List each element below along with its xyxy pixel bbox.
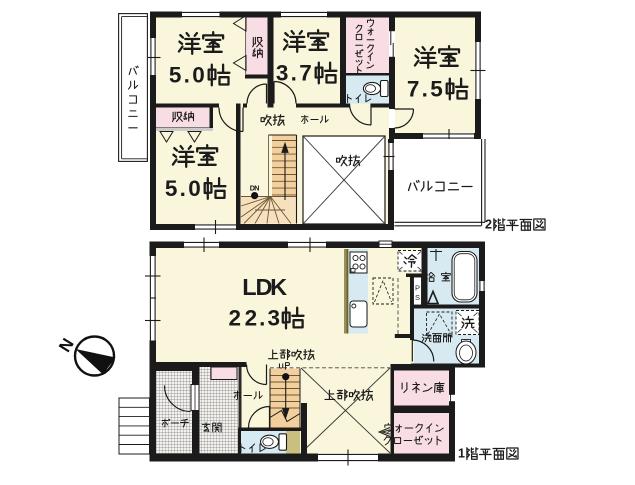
- svg-text:2: 2: [485, 218, 492, 232]
- svg-text:1: 1: [458, 447, 465, 461]
- svg-text:0: 0: [188, 176, 201, 201]
- svg-text:S: S: [415, 293, 420, 302]
- svg-text:3: 3: [268, 306, 281, 331]
- svg-text:5: 5: [430, 77, 443, 102]
- svg-text:7: 7: [407, 77, 420, 102]
- svg-text:N: N: [254, 184, 259, 193]
- svg-text:.: .: [259, 306, 265, 331]
- svg-text:U: U: [278, 361, 283, 370]
- svg-text:L: L: [242, 274, 256, 300]
- svg-text:5: 5: [169, 63, 182, 88]
- svg-text:0: 0: [192, 63, 205, 88]
- svg-text:5: 5: [165, 176, 178, 201]
- svg-text:.: .: [422, 77, 428, 102]
- svg-text:2: 2: [245, 306, 258, 331]
- svg-text:.: .: [180, 176, 186, 201]
- svg-text:2: 2: [228, 306, 241, 331]
- svg-text:7: 7: [299, 61, 312, 86]
- svg-text:K: K: [270, 274, 287, 300]
- svg-text:.: .: [291, 61, 297, 86]
- svg-text:.: .: [184, 63, 190, 88]
- svg-text:P: P: [415, 284, 420, 293]
- svg-text:3: 3: [276, 61, 289, 86]
